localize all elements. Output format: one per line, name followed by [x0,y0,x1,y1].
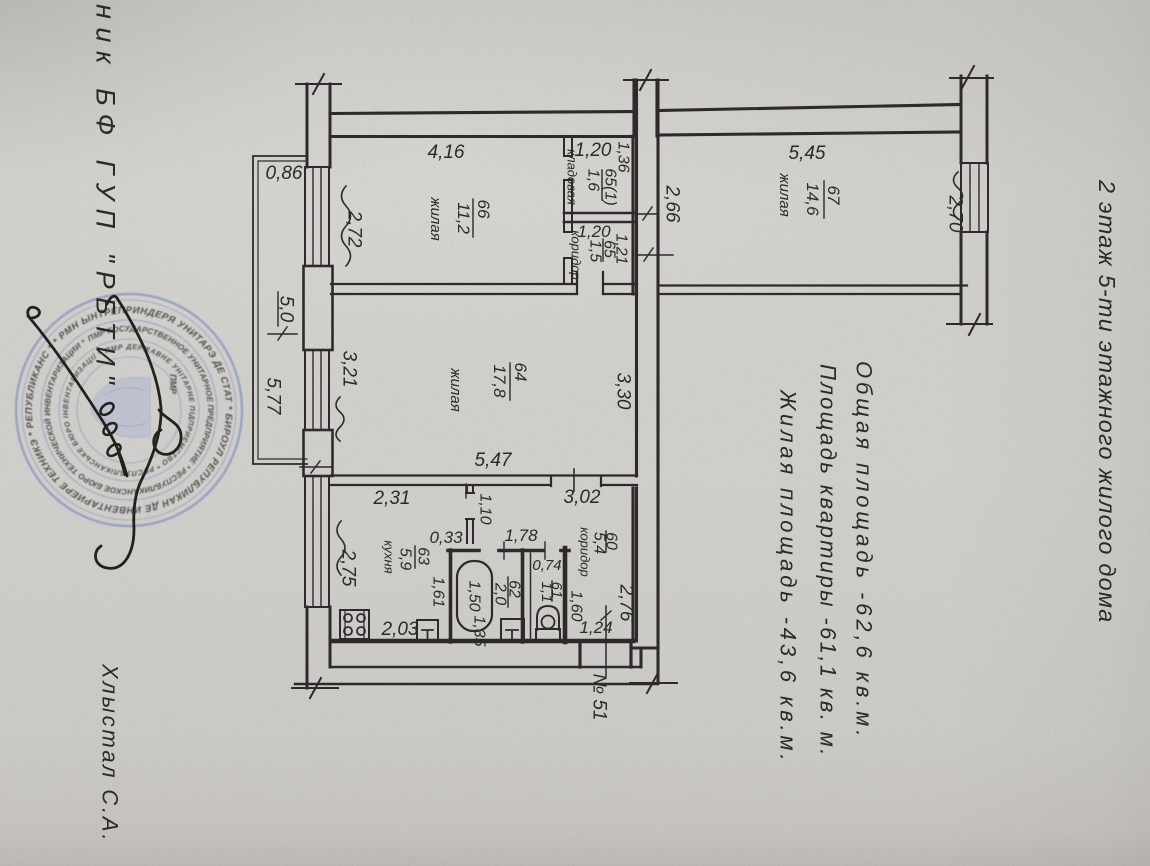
svg-text:17,8: 17,8 [490,364,509,398]
svg-text:Хлыстал С.А.: Хлыстал С.А. [97,663,122,843]
svg-text:11,2: 11,2 [454,202,473,234]
svg-text:0,86: 0,86 [266,163,303,184]
svg-text:1,6: 1,6 [584,169,601,191]
svg-text:2,31: 2,31 [373,488,411,509]
svg-text:Общая площадь -62,6 кв.м.: Общая площадь -62,6 кв.м. [851,361,876,740]
svg-text:3,21: 3,21 [338,351,359,388]
svg-text:ник БФ ГУП "РБТИ": ник БФ ГУП "РБТИ" [91,4,121,392]
svg-text:63: 63 [414,547,431,565]
svg-text:2 этаж 5-ти этажного жилого д: 2 этаж 5-ти этажного жилого дома [1094,179,1120,623]
svg-text:4,16: 4,16 [428,142,465,163]
svg-text:2,66: 2,66 [661,185,682,223]
svg-text:65(1): 65(1) [601,168,618,205]
svg-text:2,72: 2,72 [343,210,364,248]
svg-text:кухня: кухня [381,540,396,573]
svg-text:Площадь квартиры -61,1 кв. м.: Площадь квартиры -61,1 кв. м. [815,364,840,758]
svg-text:1,60: 1,60 [567,590,584,621]
svg-text:коридор: коридор [577,527,592,576]
svg-text:1,61: 1,61 [429,576,446,607]
svg-text:жилая: жилая [427,196,444,240]
svg-text:3,02: 3,02 [564,487,601,508]
svg-text:14,6: 14,6 [803,182,822,216]
svg-text:66: 66 [474,200,493,219]
svg-text:67: 67 [824,186,843,205]
svg-text:кладовая: кладовая [564,149,579,205]
svg-text:0,33: 0,33 [429,528,463,547]
svg-text:2,76: 2,76 [615,584,636,622]
svg-text:0,74: 0,74 [532,557,561,574]
svg-text:жилая: жилая [447,367,464,411]
svg-text:жилая: жилая [776,172,793,216]
svg-text:1,1: 1,1 [538,582,555,603]
svg-text:1,5: 1,5 [586,240,603,262]
svg-text:5,0: 5,0 [275,296,296,323]
svg-text:2,75: 2,75 [337,549,358,587]
svg-text:3,30: 3,30 [612,373,633,410]
svg-text:1,50: 1,50 [465,580,482,611]
svg-text:5,47: 5,47 [475,450,513,471]
svg-text:5,77: 5,77 [262,378,283,416]
svg-text:5,9: 5,9 [396,548,413,570]
svg-text:коридор: коридор [568,230,583,279]
svg-text:Жилая площадь -43,6 кв.м.: Жилая площадь -43,6 кв.м. [775,389,800,764]
svg-text:64: 64 [511,363,530,382]
svg-text:1,10: 1,10 [476,493,493,524]
svg-text:1,78: 1,78 [504,526,538,545]
svg-text:5,45: 5,45 [789,143,826,164]
svg-text:1,35: 1,35 [470,615,487,646]
svg-text:2,70: 2,70 [944,195,965,233]
svg-text:2,0: 2,0 [491,582,508,605]
svg-text:2,03: 2,03 [381,619,419,640]
svg-text:№ 51: № 51 [588,674,609,721]
